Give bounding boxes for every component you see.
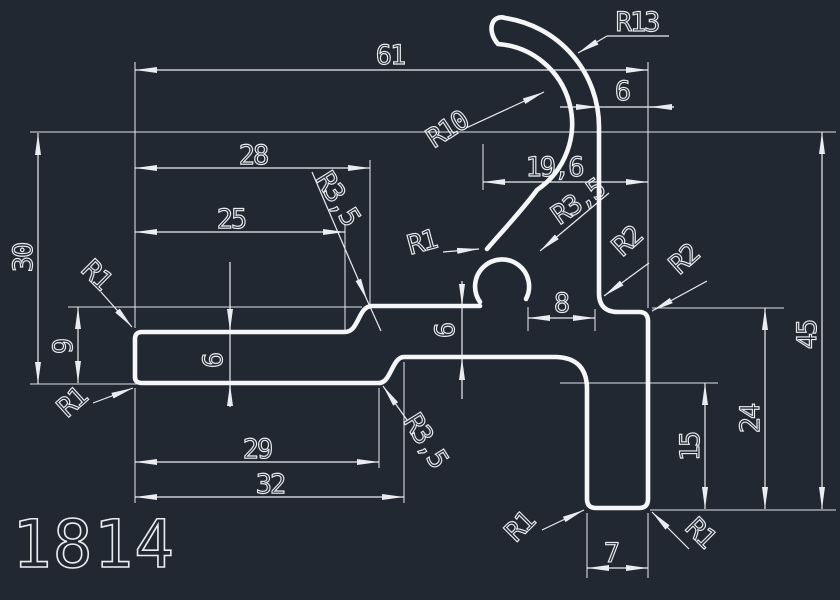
- dim-text-6-tongue: 6: [198, 353, 229, 368]
- dim-text-25: 25: [217, 204, 246, 235]
- radius-text-r2-left: R2: [606, 221, 648, 263]
- radius-text-r1-leg-right: R1: [679, 512, 722, 555]
- radius-text-r10: R10: [421, 105, 474, 155]
- leader-r1-leg-left: [542, 510, 584, 530]
- profile-knob-path: [475, 259, 529, 302]
- leader-r2-right: [652, 281, 707, 311]
- leader-r1-tongue-top: [101, 292, 132, 327]
- technical-drawing-1814: 61 6 19,6 28 25 8 29 32 7 30 9 6 6 15 24…: [0, 0, 840, 600]
- cad-canvas: 61 6 19,6 28 25 8 29 32 7 30 9 6 6 15 24…: [0, 0, 840, 600]
- radius-text-r2-right: R2: [663, 239, 705, 281]
- radius-text-r1-tongue-top: R1: [75, 254, 118, 297]
- radius-text-r1-tongue-bottom: R1: [51, 381, 93, 424]
- dim-text-9: 9: [48, 339, 79, 354]
- leader-r10: [466, 92, 544, 128]
- dim-text-32: 32: [256, 469, 285, 500]
- radius-text-r13: R13: [616, 7, 660, 38]
- leader-lines: [93, 36, 707, 549]
- dim-text-30: 30: [8, 243, 39, 272]
- dim-text-7: 7: [604, 538, 619, 569]
- profile-main-path: [135, 17, 648, 508]
- dim-text-6-top: 6: [615, 76, 630, 107]
- dimension-lines: [38, 70, 822, 568]
- dim-text-15: 15: [675, 432, 706, 461]
- radius-text-r1-knob: R1: [404, 224, 440, 262]
- leader-r35-bottom-step: [383, 386, 407, 420]
- profile-outline: [135, 17, 648, 508]
- dim-text-6-band: 6: [430, 323, 461, 338]
- dim-text-29: 29: [243, 434, 272, 465]
- radius-text-r35-top: R3,5: [309, 166, 366, 231]
- dim-text-28: 28: [239, 140, 268, 171]
- drawing-number: 1814: [12, 506, 175, 583]
- leader-r2-left: [604, 263, 649, 296]
- dim-text-61: 61: [376, 40, 405, 71]
- leader-r1-knob: [443, 249, 479, 252]
- radius-text-r1-leg-left: R1: [499, 505, 542, 548]
- dim-text-19-6: 19,6: [525, 152, 583, 183]
- dim-text-8: 8: [554, 288, 569, 319]
- leader-r13: [578, 36, 607, 53]
- dim-text-45: 45: [792, 320, 823, 349]
- leader-r1-tongue-bottom: [93, 388, 133, 403]
- dim-text-24: 24: [735, 404, 766, 433]
